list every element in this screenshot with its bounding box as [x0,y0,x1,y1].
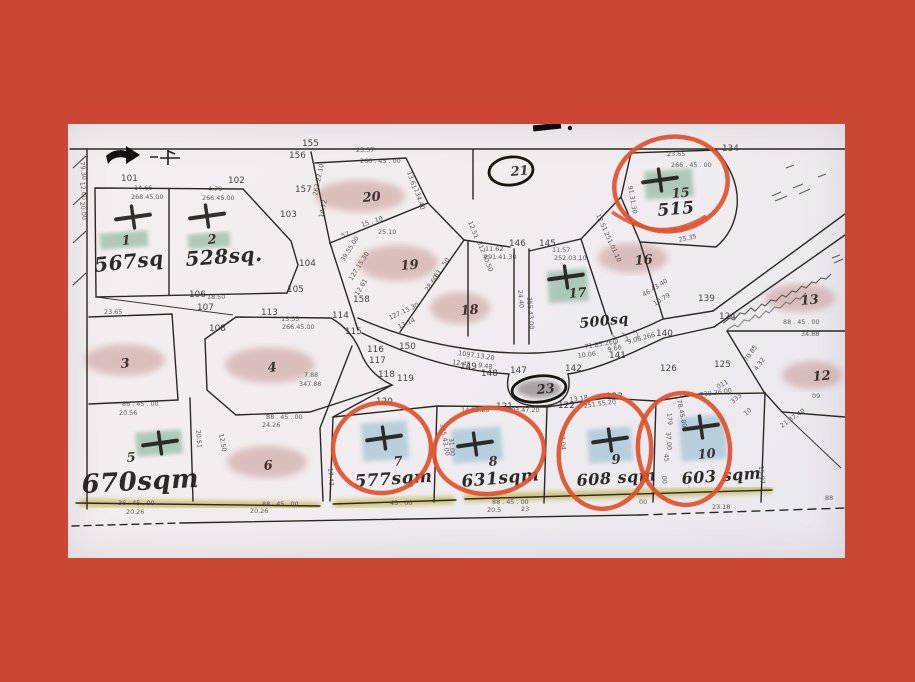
parcel-point-150: 150 [399,342,416,352]
lot-label-21: 21 [509,163,529,180]
dimension-text: 20.26 [126,508,144,516]
dimension-text: 20.00 [78,201,88,220]
dimension-text: 11.62 [485,245,503,253]
parcel-point-157: 157 [295,185,312,195]
parcel-point-145: 145 [539,239,556,249]
dimension-text: 24.26 [262,421,280,429]
dimension-text: 88 . 45 . 00 [266,413,303,421]
lot-label-8: 8 [488,454,498,470]
dimension-text: 20.26 [250,507,268,515]
parcel-point-156: 156 [289,151,306,161]
parcel-point-140: 140 [656,329,673,339]
dimension-text: 12.51 [466,220,480,240]
parcel-point-103: 103 [280,210,297,220]
parcel-point-105: 105 [287,285,304,295]
dimension-text: 25.10 [378,228,396,236]
parcel-point-149: 149 [460,362,477,372]
lot-label-17: 17 [568,285,587,302]
parcel-point-107: 107 [197,303,214,313]
parcel-point-155: 155 [302,139,319,149]
lot-area-7: 577sqm [354,467,433,492]
lot-label-12: 12 [812,368,831,385]
dimension-text: 00 [639,498,647,506]
cross-v [131,206,134,228]
top-edge-ink-mark [533,124,572,131]
dimension-text: 15.55 [281,315,299,323]
lot-label-10: 10 [697,446,716,463]
parcel-point-106: 106 [189,290,206,300]
parcel-point-119: 119 [397,374,414,384]
parcel-point-139: 139 [698,294,715,304]
lot-area-15: 515 [657,198,696,221]
lot-label-3: 3 [120,356,130,372]
cross-mark-lot-2 [189,203,226,230]
dimension-text: 09 [812,392,820,400]
parcel-point-148: 148 [481,369,498,379]
dimension-text: 28.60 [423,274,440,294]
dimension-text: 57 [340,230,350,240]
parcel-point-134: 134 [722,144,739,154]
dimension-text: 23.65 [104,308,122,316]
dimension-text: 24.40 [516,289,526,308]
dimension-text: 86 . 45 . 00 [122,400,159,408]
lot-label-9: 9 [611,452,621,468]
dimension-text: 266 . 45 . 00 [671,161,712,169]
dimension-text: 34.88 [801,330,819,338]
dimension-text: 17.43 [326,467,336,486]
dimension-text: 13.14 [396,316,416,331]
lot-label-7: 7 [393,454,403,470]
parcel-point-124: 124 [719,312,736,322]
parcel-point-142: 142 [565,364,582,374]
dimension-text: 88 [825,494,833,502]
pink-shade-lot-20 [315,180,405,212]
parcel-point-125: 125 [714,360,731,370]
dimension-text: 91.31.30 [626,185,639,214]
parcel-point-146: 146 [509,239,526,249]
lot-label-19: 19 [400,257,419,274]
dimension-text: 00 [660,475,669,484]
dimension-text: 18.50 [207,293,225,301]
lot-area-17: 500sq [579,311,630,332]
lot-label-1: 1 [121,233,131,249]
dimension-text: 31.00 [447,437,457,456]
survey-station-icon [150,150,180,165]
parcel-point-101: 101 [121,174,138,184]
pink-shade-lot-19 [358,245,438,281]
dimension-text: 134.40 [412,187,427,211]
lot-area-2: 528sq. [185,242,263,271]
dimension-text: 266.45.00 [202,194,235,202]
dimension-text: 347.88 [299,380,321,388]
parcel-point-141: 141 [609,351,626,361]
lot-label-20: 20 [361,189,381,206]
parcel-point-158: 158 [353,295,370,305]
dimension-text: 23.18 [712,503,730,511]
cross-v [205,205,208,227]
parcel-point-118: 118 [378,370,395,380]
parcel-point-126: 126 [660,364,677,374]
parcel-point-104: 104 [299,259,316,269]
parcel-point-113: 113 [261,308,278,318]
dimension-text: 12.50 [217,433,228,452]
dimension-text: 88 . 45 . 00 [783,318,820,326]
dimension-text: 45 . 00 [390,499,412,507]
dimension-text: 179 [665,412,674,425]
dimension-text: 268.45.00 [131,193,164,201]
dimension-text: 79.30 [78,161,88,180]
dimension-text: 4.32 [752,356,767,372]
dimension-text: 4.79 [208,185,222,193]
dimension-text: 37.00 [664,431,674,450]
pink-shade-lot-16 [598,243,668,273]
survey-map: 23.57266 . 45 . 0014.66268.45.004.79266.… [68,124,845,558]
dimension-text: 10.79 [652,291,672,307]
dimension-text: 266.45.00 [282,323,315,331]
lot-label-4: 4 [267,360,277,376]
dimension-text: 178.45.00 [674,395,689,428]
dimension-text: 291.41.30 [484,253,517,261]
pen-marks-layer [106,124,736,515]
dimension-text: 25.35 [678,232,698,244]
dimension-text: 12.00 [78,181,88,200]
dimension-text: 36 . 45 . 00 [118,499,155,507]
dimension-text: 23 [521,505,529,513]
dimension-text: 23.57 [356,146,374,154]
lot-label-18: 18 [460,302,479,319]
dimension-text: 127.15.30 [387,301,420,322]
dimension-text: 21.37.40 [779,407,807,430]
lot-area-5: 670sqm [81,464,200,500]
cross-mark-lot-1 [115,204,152,231]
dimension-text: 7.88 [304,371,318,379]
lot-label-13: 13 [800,292,819,309]
parcel-point-114: 114 [332,311,349,321]
dimension-text: 45 [662,453,671,462]
parcel-point-102: 102 [228,176,245,186]
dimension-text: 20.5 [487,506,501,514]
lot-label-5: 5 [126,450,136,466]
dimension-text: 252.03.10 [554,254,587,262]
dimension-text: 10.06 [577,350,596,360]
dimension-text: 10 [742,406,753,417]
map-photo: 23.57266 . 45 . 0014.66268.45.004.79266.… [68,124,845,558]
dimension-text: 13.61 [405,170,418,190]
parcel-point-147: 147 [510,366,527,376]
dimension-text: 23.65 [667,150,685,158]
dimension-text: 20.51 [194,429,204,448]
dimension-text: 355.43.00 [525,296,536,329]
lot-label-6: 6 [263,458,273,474]
lot-label-16: 16 [634,252,653,269]
photo-border: 23.57266 . 45 . 0014.66268.45.004.79266.… [0,0,915,682]
dimension-text: 14.66 [134,184,152,192]
lot-area-1: 567sq [93,246,165,277]
dimension-text: 20.56 [119,409,137,417]
parcel-point-116: 116 [367,345,384,355]
dimension-text: 15 . 10 [360,214,384,229]
parcel-point-122: 122 [558,401,575,411]
parcel-point-117: 117 [369,356,386,366]
parcel-point-108: 108 [209,324,226,334]
parcel-point-115: 115 [345,327,362,337]
dimension-text: 266 . 45 . 00 [360,157,401,165]
lot-label-23: 23 [535,381,555,398]
